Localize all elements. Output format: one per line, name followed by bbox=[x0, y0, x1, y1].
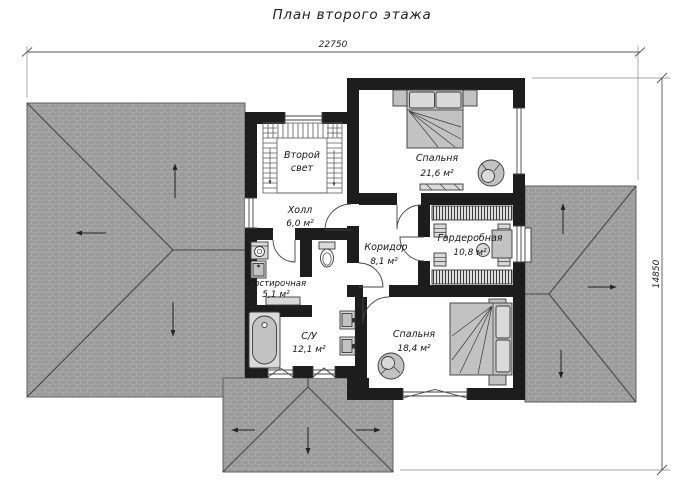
room-area-bedroom-bottom: 18,4 м² bbox=[397, 344, 431, 354]
left-roof bbox=[27, 103, 245, 397]
pillow bbox=[496, 306, 510, 338]
room-area-bathroom: 12,1 м² bbox=[292, 345, 326, 355]
wall-segment bbox=[300, 240, 312, 277]
wall-segment bbox=[355, 297, 367, 378]
sink bbox=[340, 337, 355, 355]
wall-segment bbox=[389, 285, 513, 297]
room-label-bathroom: С/У bbox=[301, 331, 318, 342]
room-label-corridor: Коридор bbox=[364, 242, 407, 253]
floor-plan-canvas: Второй свет Холл 6,0 м² Спальня 21,6 м² … bbox=[0, 0, 692, 502]
wall-segment bbox=[245, 112, 257, 198]
room-label-bedroom-top: Спальня bbox=[416, 153, 459, 164]
nightstand bbox=[393, 90, 407, 106]
pillow bbox=[496, 340, 510, 372]
wardrobe-rack bbox=[432, 206, 512, 220]
bathtub bbox=[249, 312, 280, 368]
room-label-bedroom-bottom: Спальня bbox=[393, 329, 436, 340]
washing-machine bbox=[251, 242, 268, 259]
nightstand bbox=[463, 90, 477, 106]
room-area-corridor: 8,1 м² bbox=[370, 257, 398, 267]
wall-segment bbox=[418, 205, 430, 237]
room-area-laundry: 5,1 м² bbox=[262, 290, 290, 300]
wall-segment bbox=[359, 193, 397, 205]
toilet bbox=[319, 242, 335, 267]
pillow bbox=[436, 92, 461, 108]
wall-segment bbox=[347, 378, 369, 400]
wall-segment bbox=[257, 228, 273, 240]
wall-segment bbox=[293, 366, 313, 378]
wall-segment bbox=[513, 78, 525, 108]
room-area-wardrobe: 10,8 м² bbox=[453, 248, 487, 258]
wall-segment bbox=[513, 262, 525, 400]
wall-segment bbox=[347, 90, 359, 204]
room-label-second-light: Второй bbox=[284, 150, 320, 161]
wall-segment bbox=[513, 174, 525, 226]
wall-segment bbox=[335, 366, 357, 378]
sink bbox=[340, 311, 355, 329]
plan-title: План второго этажа bbox=[272, 7, 431, 23]
wall-segment bbox=[347, 226, 359, 263]
room-label-second-light: свет bbox=[291, 163, 314, 174]
room-label-laundry: Постирочная bbox=[248, 279, 306, 289]
right-roof bbox=[525, 186, 636, 402]
room-area-hall: 6,0 м² bbox=[286, 219, 314, 229]
wall-segment bbox=[418, 261, 430, 285]
wall-segment bbox=[421, 193, 513, 205]
wardrobe-rack bbox=[432, 270, 512, 284]
shelf-unit bbox=[434, 253, 446, 266]
armchair bbox=[378, 353, 404, 379]
laundry-sink bbox=[251, 261, 266, 278]
dimension-right-label: 14850 bbox=[652, 259, 662, 288]
pillow bbox=[410, 92, 435, 108]
wall-segment bbox=[245, 112, 285, 124]
wall-segment bbox=[347, 78, 525, 90]
room-area-bedroom-top: 21,6 м² bbox=[420, 169, 454, 179]
wall-segment bbox=[467, 388, 525, 400]
room-label-hall: Холл bbox=[287, 205, 312, 216]
room-label-wardrobe: Гардеробная bbox=[437, 233, 502, 244]
dimension-top-label: 22750 bbox=[319, 40, 348, 50]
armchair bbox=[478, 160, 504, 186]
